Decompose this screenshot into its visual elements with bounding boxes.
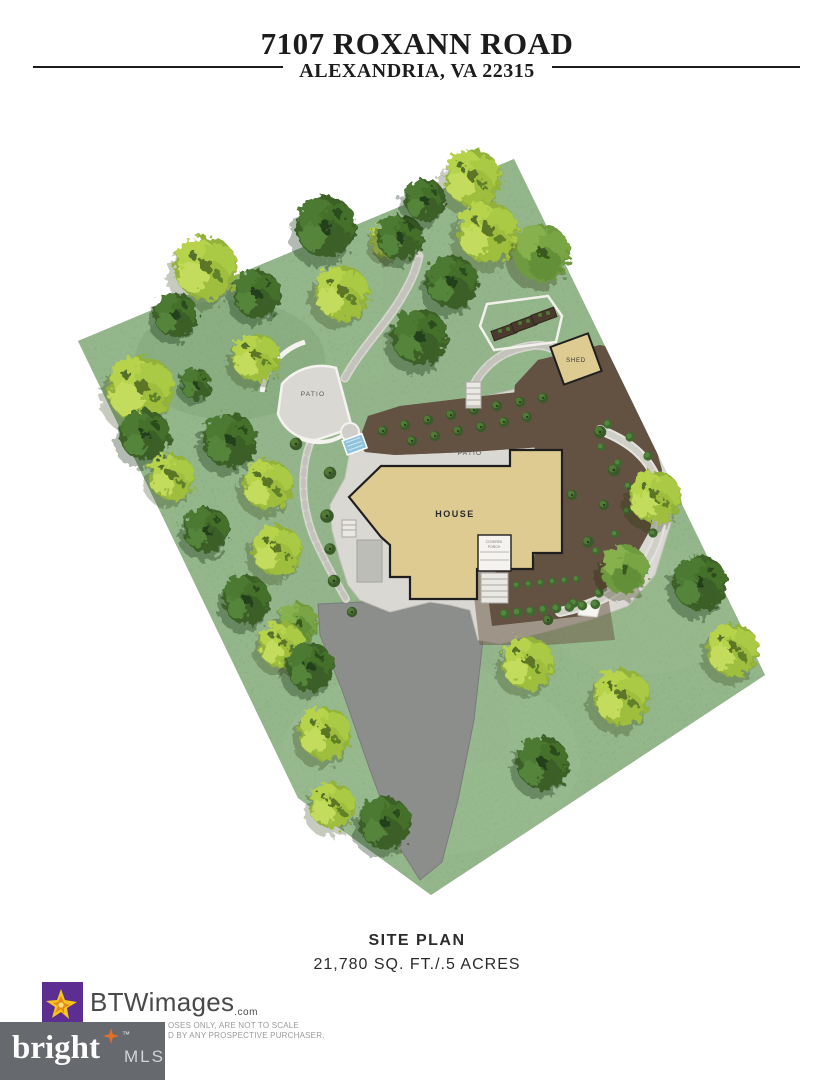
btw-tld: .com [234,1007,258,1018]
btw-name: BTWimages [90,987,234,1017]
label-house: HOUSE [435,509,475,519]
label-shed: SHED [566,358,586,364]
bright-star-icon [103,1028,119,1044]
bright-wordmark: bright [12,1030,100,1067]
bright-mls-logo: bright ™ MLS [0,1022,165,1080]
disclaimer-line-2: D BY ANY PROSPECTIVE PURCHASER. [168,1031,325,1041]
label-porch-1: COVERED [486,540,503,544]
trademark-symbol: ™ [122,1030,130,1039]
btw-logo-icon [42,982,83,1023]
btw-logo: BTWimages.com [42,980,258,1024]
label-patio-upper: PATIO [458,450,483,457]
bright-mls-text: MLS [124,1047,165,1067]
site-plan-graphic: PATIO PATIO HOUSE SHED COVERED PORCH [0,0,834,1080]
btw-wordmark: BTWimages.com [90,987,258,1018]
plan-caption: SITE PLAN [0,932,834,950]
flower-icon [42,982,83,1023]
flyer-page: 7107 ROXANN ROAD ALEXANDRIA, VA 22315 [0,0,834,1080]
label-patio-fan: PATIO [301,391,326,398]
disclaimer: OSES ONLY, ARE NOT TO SCALE D BY ANY PRO… [168,1021,325,1041]
label-porch-2: PORCH [488,545,501,549]
disclaimer-line-1: OSES ONLY, ARE NOT TO SCALE [168,1021,325,1031]
plan-area-text: 21,780 SQ. FT./.5 ACRES [0,956,834,974]
